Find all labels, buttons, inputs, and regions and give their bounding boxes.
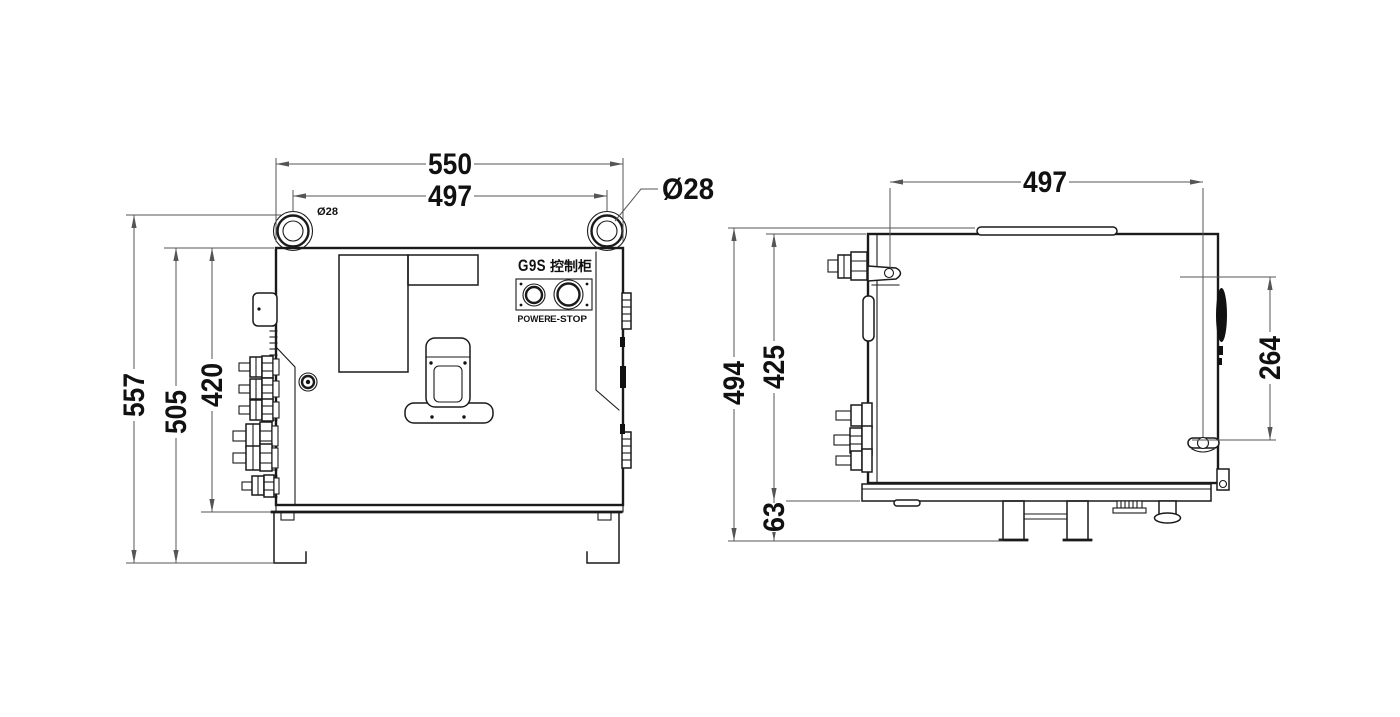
latch-tab-side: [1217, 469, 1229, 490]
cable-gland: [239, 399, 279, 421]
svg-text:557: 557: [118, 373, 151, 417]
brand-label: G9S: [518, 256, 546, 275]
svg-text:63: 63: [758, 502, 791, 532]
front-view-dimensions: 550 497 Ø28 Ø28 557: [118, 148, 714, 563]
top-lip: [977, 227, 1117, 235]
brand-label-cjk: 控制柜: [550, 258, 593, 274]
svg-text:264: 264: [1254, 336, 1287, 380]
svg-text:Ø28: Ø28: [662, 173, 714, 206]
dsub-connector: [253, 293, 277, 326]
cable-gland-large: [233, 444, 278, 471]
cable-gland: [239, 356, 279, 378]
side-gland: [836, 449, 872, 472]
hole-note: Ø28: [317, 206, 338, 218]
technical-drawing-canvas: G9S 控制柜 POWER E-STOP: [0, 0, 1400, 717]
base-strip: [862, 484, 1211, 501]
door-handle: [405, 338, 493, 423]
dim-hole-spacing: 497: [293, 180, 607, 213]
bottom-connector: [1113, 501, 1146, 513]
dim-door-height: 420: [196, 248, 229, 512]
lifting-hole-left: [274, 212, 313, 251]
rubber-foot: [1155, 501, 1181, 523]
dim-foot-height: 63: [758, 501, 791, 541]
cabinet-side-body: [868, 234, 1218, 483]
svg-text:550: 550: [428, 148, 472, 181]
svg-text:425: 425: [758, 345, 791, 389]
fold-line-left: [277, 348, 295, 505]
fold-line-right: [596, 252, 619, 410]
side-view: [828, 227, 1229, 540]
svg-text:497: 497: [1023, 166, 1067, 199]
estop-button[interactable]: [554, 280, 583, 309]
lifting-hole-right: [588, 212, 627, 251]
dim-side-body-height: 425: [758, 234, 791, 501]
cable-gland: [242, 475, 279, 497]
side-gland-top: [828, 252, 867, 280]
base-bump: [894, 500, 920, 506]
edge-seal: [620, 337, 625, 347]
dsub-side: [863, 296, 874, 341]
svg-text:505: 505: [160, 390, 193, 434]
side-gland: [836, 403, 872, 428]
hinge-top: [622, 293, 631, 329]
front-view: G9S 控制柜 POWER E-STOP: [233, 212, 631, 564]
dim-latch-span: 497: [890, 166, 1203, 437]
latch-lever-top: [868, 266, 901, 285]
edge-seal: [620, 366, 626, 388]
estop-button-label: E-STOP: [550, 314, 588, 325]
foot-channel: [1000, 501, 1091, 540]
dim-overall-height: 557: [118, 215, 151, 563]
top-panel: [408, 255, 478, 285]
dim-side-overall-height: 494: [718, 228, 751, 541]
door-lock: [299, 373, 317, 391]
dim-body-height: 505: [160, 248, 193, 563]
handle-side-profile: [1216, 288, 1227, 342]
svg-text:420: 420: [196, 363, 229, 407]
hinge-bottom: [622, 432, 631, 468]
hole-callout: Ø28: [615, 173, 714, 221]
power-button-label: POWER: [518, 314, 551, 325]
svg-text:494: 494: [718, 361, 751, 405]
dim-handle-span: 264: [1254, 277, 1287, 440]
power-button[interactable]: [523, 284, 545, 306]
control-cabinet-drawing: G9S 控制柜 POWER E-STOP: [0, 0, 1400, 717]
edge-seal: [620, 424, 625, 434]
cable-gland: [239, 378, 279, 400]
svg-text:497: 497: [428, 180, 472, 213]
vent-panel: [339, 255, 408, 372]
